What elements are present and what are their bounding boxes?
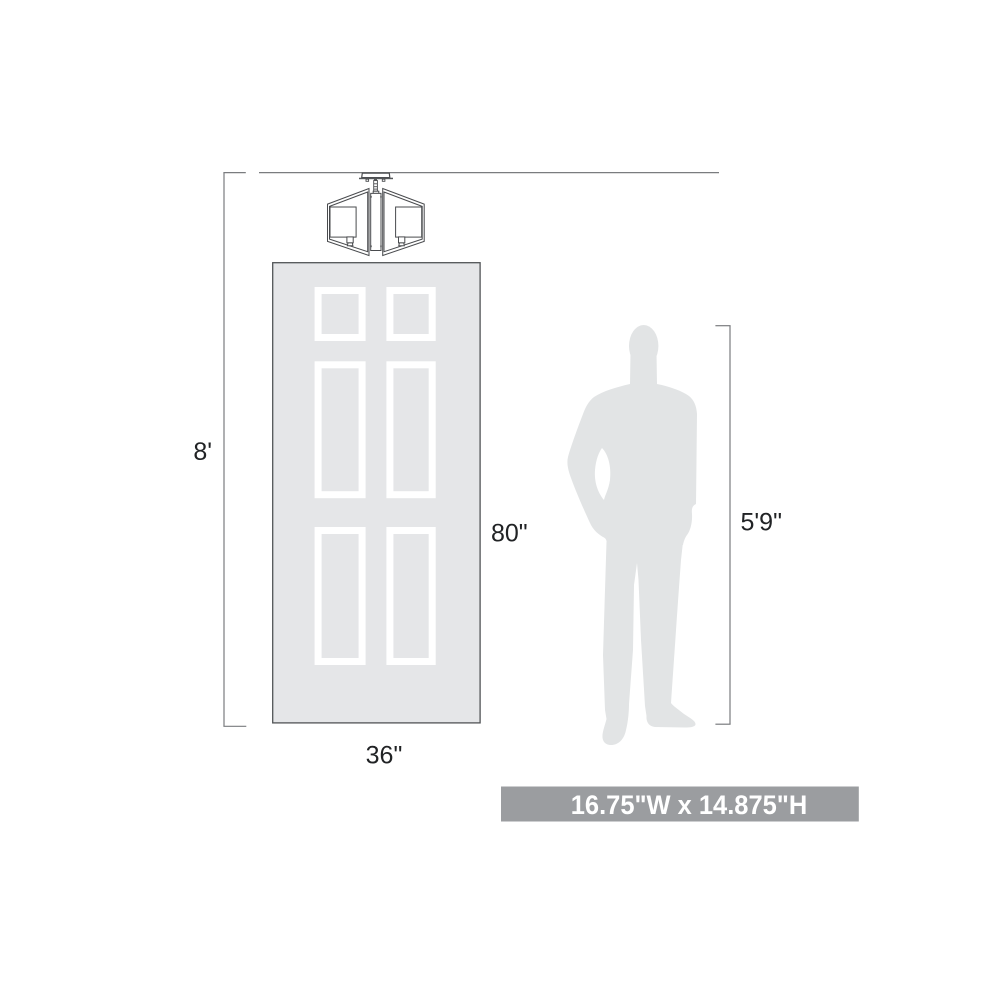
svg-text:36": 36"	[366, 742, 403, 770]
svg-text:80": 80"	[491, 520, 528, 548]
svg-text:5'9": 5'9"	[741, 509, 782, 537]
svg-text:16.75"W x 14.875"H: 16.75"W x 14.875"H	[571, 790, 808, 820]
svg-text:8': 8'	[193, 438, 212, 466]
